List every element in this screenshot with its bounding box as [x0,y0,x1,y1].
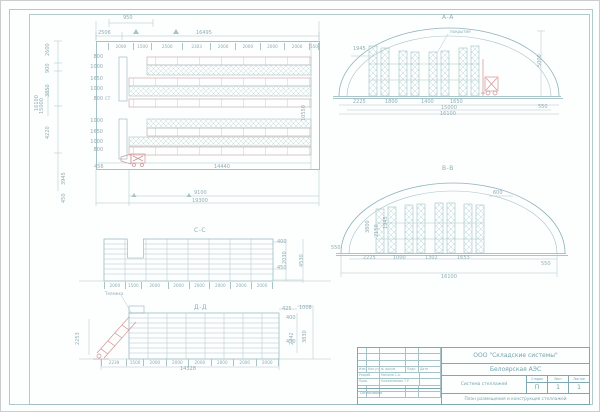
dim-400-dd: 400 [286,315,296,321]
seg: 2000 [210,43,235,50]
sheet-number: 1 [548,383,569,393]
seg: 2303 [182,43,210,50]
row-dim: 800 [91,147,103,153]
dim-2030: 2030 [282,251,288,264]
row-dim: 800 [91,54,103,60]
dim-3850: 3850 [45,84,51,97]
dim-456: 456 [94,164,104,170]
row-dim: 1000 [87,64,103,70]
stamp-header-cell: № докум. [380,367,406,372]
seg: 2000 [166,359,188,366]
row-dim: 1650 [87,129,103,135]
dim-450-cc: 450 [277,265,287,271]
seg: 1500 [126,359,143,366]
dim-400-cc: 400 [277,239,287,245]
row-dim: 1000 [87,139,103,145]
section-bb-title: В-В [442,165,454,172]
role-label: Пров. [358,379,380,384]
dim-16100-aa: 16100 [440,111,456,117]
role-name: Кожевникова Т.Р. [380,379,420,384]
section-aa-view [333,28,563,114]
drawing-sheet: 950 2506 16495 2000 1500 2500 2303 2000 … [0,0,600,412]
dim-2150: 2150 [374,224,380,237]
dim-3800: 3800 [365,220,371,233]
dim-2600: 2600 [45,43,51,56]
seg: 2000 [256,359,279,366]
trolley-callout: Тележка [105,291,123,296]
dim-16495: 16495 [196,30,212,36]
stage-header: Листов [569,376,589,382]
dim-450: 450 [61,193,67,203]
stamp-header-cell: Подп. [406,367,419,372]
dim-16100-bb: 16100 [441,274,457,280]
seg: 2500 [151,43,182,50]
stamp-header-cell: Изм. [358,367,367,372]
seg: 2000 [108,43,133,50]
forklift-section-icon [481,59,498,96]
aa-callout: покрытие [450,29,471,34]
bb-dim: 1000 [393,255,406,261]
dim-1945-aa: 1945 [353,46,366,52]
seg: 2000 [251,282,273,289]
seg: 2000 [188,359,210,366]
seg: 2000 [209,282,230,289]
row-dim: 1650 [87,76,103,82]
dim-4530: 4530 [299,254,305,267]
dim-5000: 5000 [537,54,543,67]
elevation-cc-title: С-С [194,227,206,234]
dim-1945-bb: 1945 [383,216,389,229]
seg: 2000 [235,43,260,50]
seg: 2000 [260,43,285,50]
seg: 550 [309,43,319,50]
forklift-plan-icon [121,154,145,167]
dim-550-left: 550 [331,245,341,251]
aa-dim: 1400 [421,99,434,105]
dim-9100: 9100 [194,190,207,196]
section-cut-marks [132,29,192,197]
dim-900: 900 [45,63,51,73]
label-st: СТ [105,96,110,101]
dim-2506: 2506 [98,30,111,36]
stage-table: Стадия Лист Листов П 1 1 [527,376,589,393]
dim-15000-plan: 15000 [39,98,45,114]
stage-value: П [527,383,548,393]
row-dim: 1000 [87,118,103,124]
bb-dim: 1653 [457,255,470,261]
dim-10550: 10550 [301,105,307,121]
dim-550-aa: 550 [538,104,548,110]
approved-cell: Согласовано [358,388,441,404]
sheet-title: План размещения и конструкция стеллажей [442,394,589,404]
role-name: Минина С.А. [380,373,420,378]
elevation-cc-view [79,238,331,314]
cc-segment-dims: 2000 1500 2600 2000 2000 2000 2000 2000 [104,282,273,289]
dim-3830: 3830 [302,330,308,343]
dim-3945: 3945 [61,172,67,185]
plan-top-segment-dims: 2000 1500 2500 2303 2000 2000 2000 2000 … [108,43,319,50]
seg: 1500 [133,43,152,50]
seg: 2000 [230,282,251,289]
stamp-header-cell: Кол.уч. [367,367,380,372]
dim-14328: 14328 [180,366,196,372]
seg: 2000 [211,359,233,366]
dd-segment-dims: 2239 1500 2000 2000 2000 2000 2000 2000 [101,359,279,366]
elevation-dd-title: Д-Д [194,304,207,311]
aa-dim: 2225 [353,99,366,105]
role-label: Разраб. [358,373,380,378]
section-aa-title: А-А [442,14,454,21]
seg: 2000 [233,359,255,366]
seg: 2239 [101,359,126,366]
aa-dim: 1800 [385,99,398,105]
seg: 2000 [189,282,210,289]
bb-dim: 2225 [363,255,376,261]
document-name: Система стеллажей [442,376,527,393]
sheet-count: 1 [569,383,589,393]
dim-4220: 4220 [45,126,51,139]
dim-1008: 1008 [299,305,312,311]
row-dim: 800 [91,96,103,102]
dim-2253: 2253 [75,332,81,345]
dim-950: 950 [123,15,133,21]
seg: 2000 [284,43,309,50]
row-dim: 1000 [87,86,103,92]
stage-header: Стадия [527,376,548,382]
title-block: Изм. Кол.уч. № докум. Подп. Дата Разраб.… [357,347,590,405]
dim-14440: 14440 [214,164,230,170]
object-name: Белоярская АЭС [442,364,589,376]
dim-600: 600 [493,190,503,196]
title-block-right: ООО "Складские системы" Белоярская АЭС С… [442,348,589,404]
dim-2242: 2242 [289,332,295,345]
stamp-header-cell: Дата [419,367,441,372]
dim-425: 425 [282,306,292,312]
stage-header: Лист [548,376,569,382]
seg: 1500 [125,282,141,289]
seg: 2600 [141,282,168,289]
cc-dim-lines [79,239,331,314]
dim-550-right: 550 [541,261,551,267]
bb-dim: 1302 [425,255,438,261]
seg: 2000 [143,359,165,366]
company-name: ООО "Складские системы" [442,348,589,364]
dim-19300: 19300 [192,198,208,204]
seg: 2000 [104,282,125,289]
seg: 2000 [168,282,189,289]
title-block-left: Изм. Кол.уч. № докум. Подп. Дата Разраб.… [358,348,442,404]
